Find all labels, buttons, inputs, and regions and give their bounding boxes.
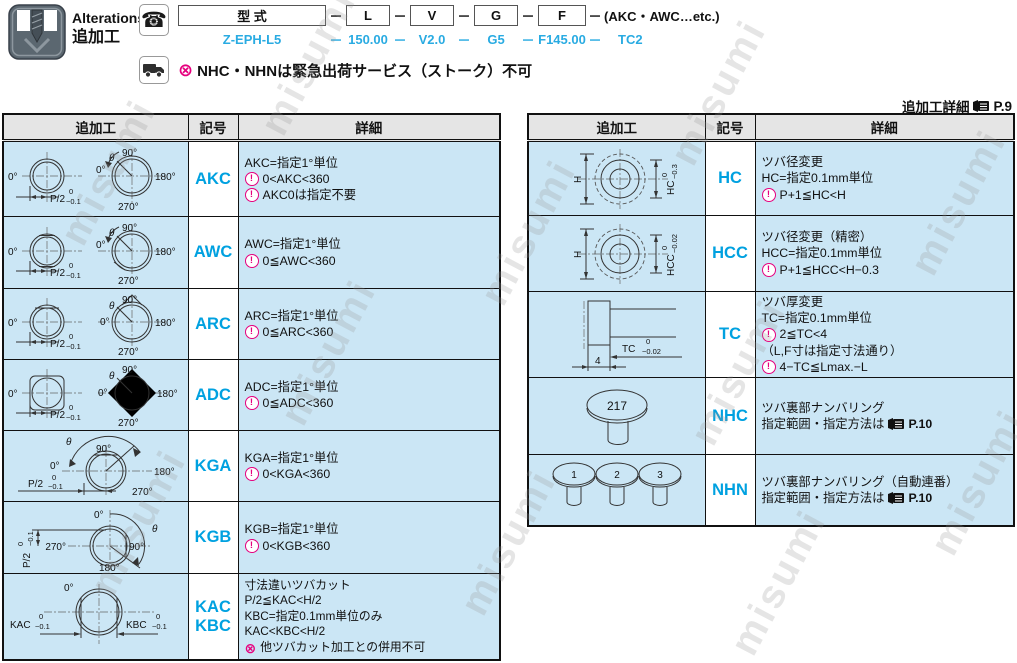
- detail-text: 他ツバカット加工との併用不可: [260, 640, 425, 656]
- akc-diagram: 0° P/2 0 −0.1 90° 180° 270° 0° θ: [6, 146, 186, 212]
- dash: －: [518, 30, 538, 49]
- shipping-note: ⊗ NHC・NHNは緊急出荷サービス（ストーク）不可: [178, 60, 532, 81]
- numbering-example: 217: [607, 399, 627, 413]
- detail-cell: 寸法違いツバカット P/2≦KAC<H/2 KBC=指定0.1mm単位のみ KA…: [238, 574, 500, 661]
- adc-diagram: 0° P/2 0 −0.1 90° 180° 270° 0° θ: [6, 363, 186, 427]
- detail-text: 指定範囲・指定方法は: [762, 416, 885, 432]
- detail-text: P+1≦HC<H: [780, 187, 846, 203]
- angle-label: 270°: [132, 487, 153, 498]
- hc-diagram: H HC 0 −0.3: [532, 145, 702, 213]
- caution-icon: !: [245, 172, 259, 186]
- angle-label: 180°: [155, 247, 176, 258]
- angle-label: 0°: [64, 583, 74, 594]
- diagram-cell: H HC 0 −0.3: [528, 141, 705, 216]
- page-ref[interactable]: P.10: [908, 490, 932, 506]
- example-alt: TC2: [604, 32, 720, 47]
- formula-box-l: L: [346, 5, 390, 26]
- angle-label: 0°: [100, 317, 110, 328]
- table-row-arc: 0° P/2 0 −0.1 90° 180° 270° 0° θ ARC ARC…: [3, 289, 500, 360]
- angle-label: 0°: [8, 389, 18, 400]
- dash: －: [326, 30, 346, 49]
- example-g: G5: [474, 32, 518, 47]
- detail-text: 指定範囲・指定方法は: [762, 490, 885, 506]
- dash: －: [586, 6, 604, 25]
- theta-label: θ: [152, 524, 158, 535]
- col-detail: 詳細: [238, 114, 500, 141]
- diagram-cell: 0° 270° 90° 180° θ P/2 0 −0.1: [3, 502, 188, 574]
- symbol: HCC: [706, 244, 755, 263]
- symbol-cell: NHC: [705, 378, 755, 455]
- tol-label: 0: [69, 187, 73, 196]
- dash: －: [518, 6, 538, 25]
- detail-text: 0<KGB<360: [263, 538, 331, 554]
- dim-label: HC: [666, 180, 677, 194]
- angle-label: 0°: [94, 510, 104, 521]
- tol-label: −0.1: [26, 531, 35, 546]
- example-f: F145.00: [538, 32, 586, 47]
- caution-icon: !: [245, 467, 259, 481]
- detail-text: HCC=指定0.1mm単位: [762, 245, 883, 261]
- angle-label: 270°: [118, 347, 139, 356]
- angle-label: 180°: [154, 467, 175, 478]
- page-icon: [888, 418, 904, 430]
- symbol-cell: KGB: [188, 502, 238, 574]
- awc-diagram: 0° P/2 0 −0.1 90° 180° 270° 0° θ: [6, 221, 186, 285]
- detail-cell: KGB=指定1°単位 !0<KGB<360: [238, 502, 500, 574]
- theta-label: θ: [109, 301, 115, 312]
- tol-label: 0: [39, 612, 43, 621]
- table-header-row: 追加工 記号 詳細: [3, 114, 500, 141]
- dash: －: [390, 30, 410, 49]
- dash: －: [390, 6, 410, 25]
- angle-label: 270°: [118, 418, 139, 427]
- tol-label: −0.1: [48, 482, 63, 491]
- symbol-cell: KGA: [188, 431, 238, 502]
- alterations-icon: [8, 4, 66, 65]
- arc-diagram: 0° P/2 0 −0.1 90° 180° 270° 0° θ: [6, 292, 186, 356]
- detail-cell: AWC=指定1°単位 !0≦AWC<360: [238, 217, 500, 289]
- dim-label: P/2: [50, 339, 65, 350]
- detail-text: 0<AKC<360: [263, 171, 330, 187]
- diagram-cell: 1 2 3: [528, 455, 705, 527]
- angle-label: 90°: [122, 223, 137, 234]
- symbol-cell: AKC: [188, 141, 238, 217]
- detail-cell: ツバ厚変更 TC=指定0.1mm単位 !2≦TC<4 （L,F寸は指定寸法通り）…: [755, 292, 1014, 378]
- symbol-cell: ADC: [188, 360, 238, 431]
- caution-icon: !: [762, 188, 776, 202]
- dash: －: [326, 6, 346, 25]
- caution-icon: !: [245, 188, 259, 202]
- angle-label: 0°: [8, 247, 18, 258]
- formula-box-v: V: [410, 5, 454, 26]
- symbol: AKC: [189, 170, 238, 189]
- angle-label: 180°: [157, 389, 178, 400]
- angle-label: 180°: [99, 563, 120, 572]
- angle-label: 0°: [96, 165, 106, 176]
- kgb-diagram: 0° 270° 90° 180° θ P/2 0 −0.1: [6, 504, 186, 572]
- detail-text: AKC0は指定不要: [263, 187, 357, 203]
- angle-label: 90°: [122, 295, 137, 306]
- tol-label: 0: [69, 332, 73, 341]
- example-v: V2.0: [410, 32, 454, 47]
- diagram-cell: 0° P/2 0 −0.1 90° 180° 270° 0° θ: [3, 141, 188, 217]
- theta-label: θ: [109, 371, 115, 382]
- dim-label: H: [573, 250, 584, 257]
- tol-label: 0: [660, 245, 669, 249]
- table-row-nhc: 217 NHC ツバ裏部ナンバリング 指定範囲・指定方法は P.10: [528, 378, 1014, 455]
- col-detail: 詳細: [755, 114, 1014, 141]
- diagram-cell: H HCC 0 −0.02: [528, 216, 705, 292]
- nhc-diagram: 217: [532, 380, 702, 452]
- detail-text: TC=指定0.1mm単位: [762, 310, 872, 326]
- tol-label: −0.1: [66, 271, 81, 280]
- diagram-cell: 0° P/2 0 −0.1 90° 180° 270° 0° θ: [3, 289, 188, 360]
- detail-text: HC=指定0.1mm単位: [762, 170, 874, 186]
- page-ref[interactable]: P.10: [908, 416, 932, 432]
- detail-cell: ツバ径変更（精密） HCC=指定0.1mm単位 !P+1≦HCC<H−0.3: [755, 216, 1014, 292]
- angle-label: 90°: [122, 365, 137, 376]
- tol-label: −0.1: [152, 622, 167, 631]
- diagram-cell: 217: [528, 378, 705, 455]
- detail-text: 0≦AWC<360: [263, 253, 336, 269]
- angle-label: 270°: [118, 276, 139, 285]
- theta-label: θ: [66, 437, 72, 448]
- detail-text: AKC=指定1°単位: [245, 155, 338, 171]
- symbol-cell: ARC: [188, 289, 238, 360]
- phone-icon: ☎: [141, 10, 167, 31]
- detail-text: ツバ厚変更: [762, 294, 824, 310]
- dim-label: P/2: [22, 552, 33, 567]
- symbol: ARC: [189, 315, 238, 334]
- detail-cell: ツバ裏部ナンバリング 指定範囲・指定方法は P.10: [755, 378, 1014, 455]
- angle-label: 180°: [155, 172, 176, 183]
- diagram-cell: 0° KAC 0 −0.1 KBC 0 −0.1: [3, 574, 188, 661]
- caution-icon: !: [762, 263, 776, 277]
- col-symbol: 記号: [188, 114, 238, 141]
- tc-diagram: TC 0 −0.02 4: [532, 297, 702, 373]
- numbering-example: 2: [614, 470, 620, 481]
- angle-label: 90°: [122, 148, 137, 159]
- title-japanese: 追加工: [72, 28, 145, 48]
- dash: －: [454, 30, 474, 49]
- table-row-kgb: 0° 270° 90° 180° θ P/2 0 −0.1 KGB KGB=指定…: [3, 502, 500, 574]
- col-symbol: 記号: [705, 114, 755, 141]
- model-box: 型 式: [178, 5, 326, 26]
- dim-label: HCC: [666, 254, 677, 276]
- dim-label: P/2: [50, 194, 65, 205]
- title-english: Alterations: [72, 10, 145, 28]
- nhn-diagram: 1 2 3: [532, 458, 702, 522]
- angle-label: 0°: [8, 318, 18, 329]
- hcc-diagram: H HCC 0 −0.02: [532, 219, 702, 289]
- detail-cell: ツバ径変更 HC=指定0.1mm単位 !P+1≦HC<H: [755, 141, 1014, 216]
- diagram-cell: TC 0 −0.02 4: [528, 292, 705, 378]
- symbol: KAC: [189, 598, 238, 617]
- detail-ref-page: P.9: [993, 99, 1012, 114]
- tol-label: 0: [646, 337, 650, 346]
- detail-cell: ADC=指定1°単位 !0≦ADC<360: [238, 360, 500, 431]
- tol-label: −0.1: [66, 197, 81, 206]
- theta-label: θ: [109, 228, 115, 239]
- dim-label: TC: [622, 344, 635, 355]
- dim-label: KBC: [126, 620, 147, 631]
- truck-icon: [142, 61, 166, 79]
- formula-box-g: G: [474, 5, 518, 26]
- phone-order-icon: ☎: [139, 4, 169, 36]
- detail-cell: ARC=指定1°単位 !0≦ARC<360: [238, 289, 500, 360]
- detail-cell: KGA=指定1°単位 !0<KGA<360: [238, 431, 500, 502]
- table-row-kac-kbc: 0° KAC 0 −0.1 KBC 0 −0.1 KAC KBC 寸法違いツバカ…: [3, 574, 500, 661]
- formula-suffix: (AKC・AWC…etc.): [604, 6, 720, 25]
- detail-text: ADC=指定1°単位: [245, 379, 339, 395]
- angle-label: 90°: [96, 444, 111, 455]
- symbol: ADC: [189, 386, 238, 405]
- table-row-awc: 0° P/2 0 −0.1 90° 180° 270° 0° θ AWC: [3, 217, 500, 289]
- shipping-note-text: NHC・NHNは緊急出荷サービス（ストーク）不可: [197, 60, 532, 81]
- caution-icon: !: [762, 328, 776, 342]
- example-model: Z-EPH-L5: [178, 32, 326, 47]
- angle-label: 0°: [96, 240, 106, 251]
- table-row-nhn: 1 2 3 NHN ツバ裏部ナンバリング（自動連番） 指定範囲・指定方法は: [528, 455, 1014, 527]
- caution-icon: !: [245, 539, 259, 553]
- detail-text: （L,F寸は指定寸法通り）: [762, 343, 903, 359]
- symbol-cell: KAC KBC: [188, 574, 238, 661]
- kac-kbc-diagram: 0° KAC 0 −0.1 KBC 0 −0.1: [6, 578, 186, 656]
- prohibited-icon: ⊗: [178, 61, 193, 79]
- dim-label: H: [573, 175, 584, 182]
- tol-label: 0: [52, 473, 56, 482]
- alterations-table-left: 追加工 記号 詳細 0° P/2 0 −0.1 90° 180° 270°: [2, 113, 501, 661]
- tol-label: −0.02: [642, 347, 661, 356]
- detail-text: KAC<KBC<H/2: [245, 624, 326, 640]
- tol-label: 0: [660, 172, 669, 176]
- table-row-hc: H HC 0 −0.3 HC ツバ径変更 HC=指定0.1mm単位 !P+1≦H…: [528, 141, 1014, 216]
- table-row-hcc: H HCC 0 −0.02 HCC ツバ径変更（精密） HCC=指定0.1mm単…: [528, 216, 1014, 292]
- detail-text: 0≦ARC<360: [263, 324, 334, 340]
- symbol-cell: HC: [705, 141, 755, 216]
- dim-label: P/2: [50, 268, 65, 279]
- detail-text: ツバ裏部ナンバリング: [762, 400, 885, 416]
- tol-label: −0.1: [66, 342, 81, 351]
- table-row-tc: TC 0 −0.02 4 TC ツバ厚変更 TC=指定0.1mm単位 !2≦TC…: [528, 292, 1014, 378]
- detail-text: ツバ径変更: [762, 154, 824, 170]
- col-process: 追加工: [3, 114, 188, 141]
- detail-text: ツバ径変更（精密）: [762, 229, 873, 245]
- angle-label: 270°: [118, 202, 139, 212]
- angle-label: 270°: [45, 542, 66, 553]
- symbol: HC: [706, 169, 755, 188]
- symbol: TC: [706, 325, 755, 344]
- detail-text: AWC=指定1°単位: [245, 236, 341, 252]
- tol-label: −0.02: [670, 234, 679, 253]
- table-row-akc: 0° P/2 0 −0.1 90° 180° 270° 0° θ AKC AKC…: [3, 141, 500, 217]
- dim-label: P/2: [50, 410, 65, 421]
- detail-text: 0≦ADC<360: [263, 395, 334, 411]
- detail-text: 4−TC≦Lmax.−L: [780, 359, 868, 375]
- detail-text: 0<KGA<360: [263, 466, 331, 482]
- example-l: 150.00: [346, 32, 390, 47]
- dash: －: [586, 30, 604, 49]
- symbol-cell: AWC: [188, 217, 238, 289]
- symbol: AWC: [189, 243, 238, 262]
- shipping-note-row: ⊗ NHC・NHNは緊急出荷サービス（ストーク）不可: [139, 56, 532, 84]
- detail-cell: AKC=指定1°単位 !0<AKC<360 !AKC0は指定不要: [238, 141, 500, 217]
- part-number-formula: 型 式 － L － V － G － F － (AKC・AWC…etc.) Z-E…: [178, 5, 720, 50]
- symbol-cell: NHN: [705, 455, 755, 527]
- symbol: NHN: [706, 481, 755, 500]
- detail-text: KGA=指定1°単位: [245, 450, 339, 466]
- numbering-example: 3: [657, 470, 663, 481]
- detail-text: 2≦TC<4: [780, 326, 828, 342]
- formula-box-f: F: [538, 5, 586, 26]
- page-icon: [973, 100, 989, 112]
- caution-icon: !: [762, 360, 776, 374]
- numbering-example: 1: [571, 470, 577, 481]
- detail-text: 寸法違いツバカット: [245, 578, 351, 594]
- angle-label: 90°: [129, 542, 144, 553]
- tol-label: 0: [156, 612, 160, 621]
- detail-text: P+1≦HCC<H−0.3: [780, 262, 880, 278]
- diagram-cell: 0° P/2 0 −0.1 90° 180° 270° 0° θ: [3, 360, 188, 431]
- truck-box: [139, 56, 169, 84]
- tol-label: 0: [16, 541, 25, 545]
- detail-text: KBC=指定0.1mm単位のみ: [245, 609, 383, 625]
- angle-label: 180°: [155, 318, 176, 329]
- symbol: KGA: [189, 457, 238, 476]
- detail-text: ARC=指定1°単位: [245, 308, 339, 324]
- caution-icon: !: [245, 254, 259, 268]
- symbol: KGB: [189, 528, 238, 547]
- page-icon: [888, 492, 904, 504]
- table-row-kga: θ 90° 0° 180° 270° P/2 0 −0.1 KGA KGA=指定…: [3, 431, 500, 502]
- dim-label: P/2: [28, 479, 43, 490]
- prohibited-icon: ⊗: [245, 641, 257, 655]
- caution-icon: !: [245, 325, 259, 339]
- angle-label: 0°: [98, 388, 108, 399]
- dash: －: [454, 6, 474, 25]
- tol-label: −0.3: [670, 164, 679, 179]
- tol-label: −0.1: [35, 622, 50, 631]
- detail-text: ツバ裏部ナンバリング（自動連番）: [762, 474, 959, 490]
- angle-label: 0°: [50, 461, 60, 472]
- alterations-table-right: 追加工 記号 詳細 H HC 0 −0.3: [527, 113, 1015, 527]
- symbol-cell: TC: [705, 292, 755, 378]
- detail-text: KGB=指定1°単位: [245, 521, 339, 537]
- dim-label: 4: [595, 356, 601, 367]
- theta-label: θ: [109, 153, 115, 164]
- caution-icon: !: [245, 396, 259, 410]
- diagram-cell: θ 90° 0° 180° 270° P/2 0 −0.1: [3, 431, 188, 502]
- symbol: NHC: [706, 407, 755, 426]
- kga-diagram: θ 90° 0° 180° 270° P/2 0 −0.1: [6, 433, 186, 499]
- detail-cell: ツバ裏部ナンバリング（自動連番） 指定範囲・指定方法は P.10: [755, 455, 1014, 527]
- angle-label: 0°: [8, 172, 18, 183]
- dim-label: KAC: [10, 620, 31, 631]
- col-process: 追加工: [528, 114, 705, 141]
- table-header-row: 追加工 記号 詳細: [528, 114, 1014, 141]
- diagram-cell: 0° P/2 0 −0.1 90° 180° 270° 0° θ: [3, 217, 188, 289]
- table-row-adc: 0° P/2 0 −0.1 90° 180° 270° 0° θ ADC ADC…: [3, 360, 500, 431]
- symbol: KBC: [189, 617, 238, 636]
- page-title: Alterations 追加工: [72, 10, 145, 48]
- tol-label: −0.1: [66, 413, 81, 422]
- tol-label: 0: [69, 403, 73, 412]
- tol-label: 0: [69, 261, 73, 270]
- symbol-cell: HCC: [705, 216, 755, 292]
- detail-text: P/2≦KAC<H/2: [245, 593, 322, 609]
